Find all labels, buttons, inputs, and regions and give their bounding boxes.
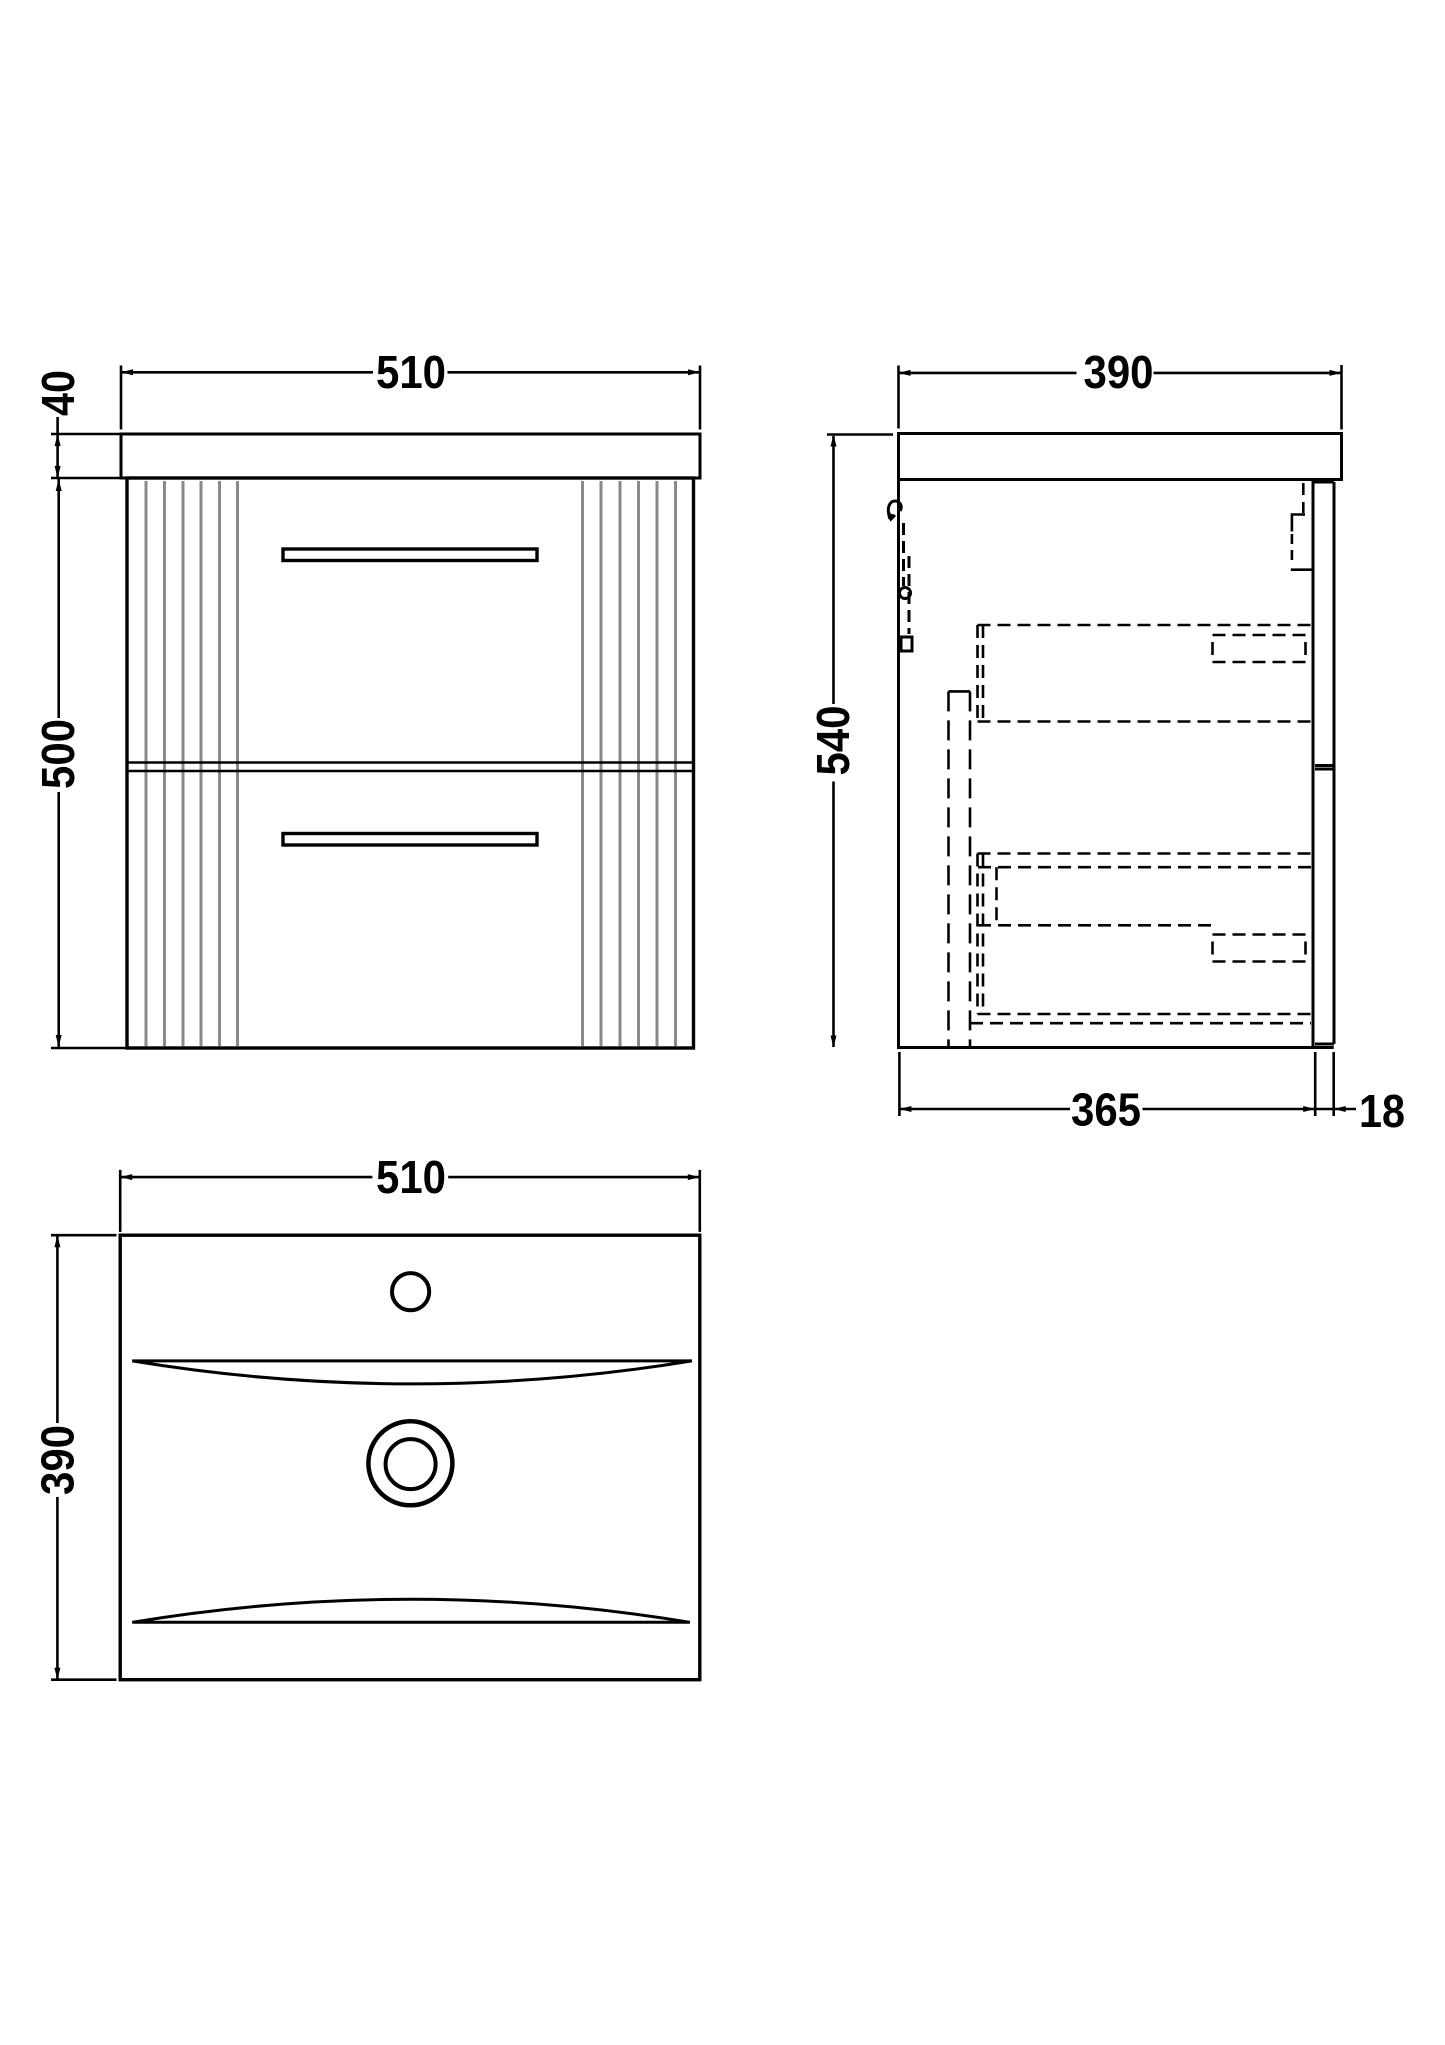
svg-text:18: 18	[1359, 1085, 1405, 1137]
svg-text:540: 540	[807, 706, 859, 776]
svg-text:500: 500	[32, 719, 84, 789]
svg-text:365: 365	[1071, 1084, 1141, 1136]
svg-text:510: 510	[376, 1151, 446, 1203]
svg-text:390: 390	[32, 1425, 84, 1495]
svg-text:510: 510	[376, 346, 446, 398]
svg-text:390: 390	[1084, 346, 1154, 398]
svg-text:40: 40	[32, 370, 84, 416]
